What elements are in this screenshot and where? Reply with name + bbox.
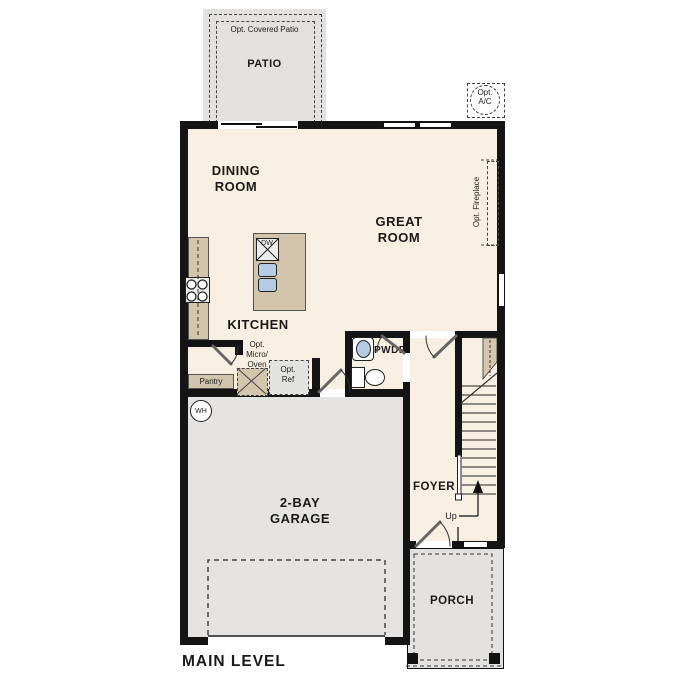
porch-post-left	[407, 653, 418, 664]
micro-x	[237, 368, 266, 394]
powder-door	[377, 336, 404, 353]
stairs	[456, 338, 498, 543]
stairs-break-line	[460, 373, 497, 404]
dishwasher-x	[256, 238, 279, 261]
fireplace-ticks	[481, 160, 497, 245]
garage-entry-door	[319, 370, 350, 392]
plan-linework	[0, 0, 687, 687]
range-burners	[187, 280, 207, 301]
stairs-up-arrowhead	[473, 480, 483, 493]
porch-post-right	[489, 653, 500, 664]
garage-door-opening	[208, 560, 385, 636]
porch-dashed-outline	[406, 554, 504, 666]
floor-plan: Opt. Covered Patio PATIO DW Pantry Opt. …	[0, 0, 687, 687]
front-door	[416, 522, 450, 546]
pantry-door	[213, 346, 238, 364]
hall-door	[426, 336, 456, 357]
stair-railing	[458, 455, 462, 497]
stair-newel	[456, 494, 462, 500]
